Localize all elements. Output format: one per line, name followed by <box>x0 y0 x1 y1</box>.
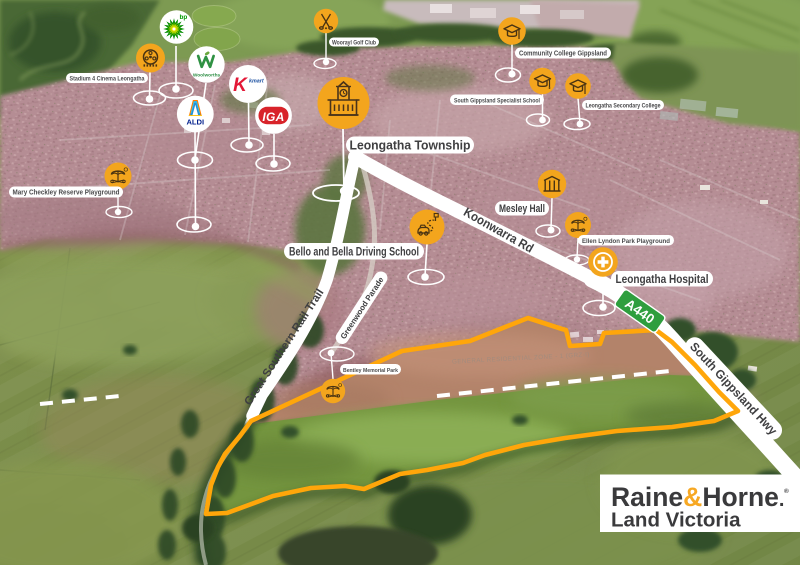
svg-text:Bentley Memorial Park: Bentley Memorial Park <box>343 368 399 374</box>
svg-text:Ellen Lyndon Park Playground: Ellen Lyndon Park Playground <box>582 238 670 245</box>
svg-text:kmart: kmart <box>249 79 264 85</box>
svg-text:Stadium 4 Cinema Leongatha: Stadium 4 Cinema Leongatha <box>70 75 145 82</box>
svg-text:IGA: IGA <box>262 110 284 124</box>
svg-text:Mary Checkley Reserve Playgrou: Mary Checkley Reserve Playground <box>13 190 120 197</box>
svg-text:Bello and Bella Driving School: Bello and Bella Driving School <box>289 245 419 259</box>
svg-text:Community College Gippsland: Community College Gippsland <box>519 51 607 58</box>
svg-text:Leongatha Township: Leongatha Township <box>350 138 471 153</box>
svg-text:bp: bp <box>180 14 188 21</box>
svg-text:Woolworths: Woolworths <box>193 73 221 79</box>
svg-text:Raine&Horne.: Raine&Horne. <box>611 482 784 512</box>
svg-text:Woorayl Golf Club: Woorayl Golf Club <box>332 39 376 46</box>
svg-text:®: ® <box>784 487 789 495</box>
svg-text:Mesley Hall: Mesley Hall <box>499 203 545 215</box>
svg-text:South Gippsland Specialist Sch: South Gippsland Specialist School <box>454 97 540 104</box>
svg-text:ALDI: ALDI <box>186 118 204 127</box>
svg-text:K: K <box>233 75 248 96</box>
svg-text:Leongatha Hospital: Leongatha Hospital <box>616 272 709 286</box>
svg-text:Leongatha Secondary College: Leongatha Secondary College <box>586 103 661 110</box>
svg-text:Land Victoria: Land Victoria <box>611 509 741 532</box>
